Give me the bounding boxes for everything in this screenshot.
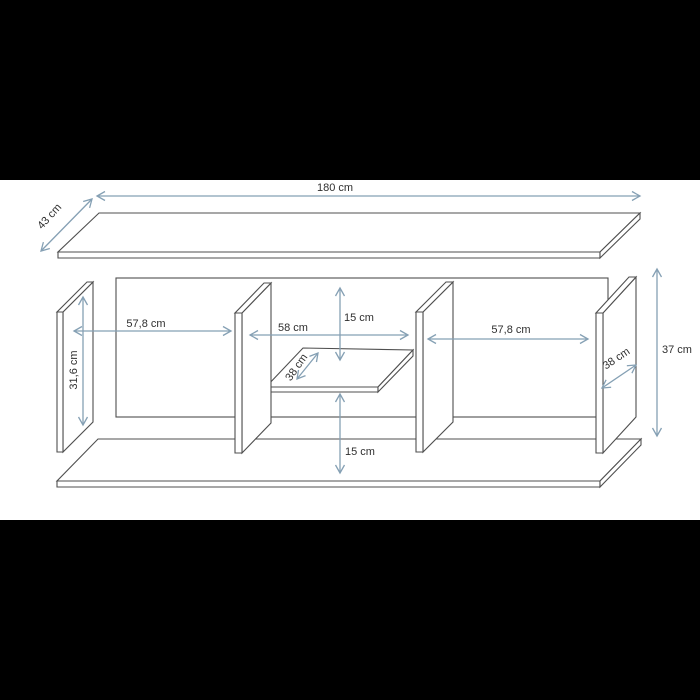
divider-left-front-edge (235, 313, 242, 453)
furniture-dimension-diagram: 180 cm 43 cm 57,8 cm 31,6 cm 58 cm 15 cm… (0, 180, 700, 520)
bottom-panel-front-edge (57, 481, 600, 487)
dim-label-left-width: 57,8 cm (126, 318, 165, 330)
dim-label-top-depth: 43 cm (35, 202, 64, 232)
side-panel-right-front-edge (596, 313, 603, 453)
dim-label-top-width: 180 cm (317, 182, 353, 194)
dim-label-total-height: 37 cm (662, 344, 692, 356)
back-panel-face (116, 278, 608, 417)
screenshot-root: 180 cm 43 cm 57,8 cm 31,6 cm 58 cm 15 cm… (0, 0, 700, 700)
dim-label-left-height: 31,6 cm (68, 350, 80, 389)
divider-right-front-edge (416, 312, 423, 452)
side-panel-left-front-edge (57, 312, 63, 452)
dim-label-center-width: 58 cm (278, 322, 308, 334)
dim-label-right-width: 57,8 cm (491, 324, 530, 336)
top-panel-front-edge (58, 252, 600, 258)
letterbox-top (0, 0, 700, 180)
divider-left (235, 283, 271, 453)
divider-right (416, 282, 453, 452)
letterbox-bottom (0, 520, 700, 700)
shelf-front-edge (266, 387, 378, 392)
back-panel (116, 278, 608, 417)
drawing-canvas: 180 cm 43 cm 57,8 cm 31,6 cm 58 cm 15 cm… (0, 180, 700, 520)
top-panel (58, 213, 640, 258)
dim-label-center-bottom-gap: 15 cm (345, 446, 375, 458)
dim-label-center-top-gap: 15 cm (344, 312, 374, 324)
top-panel-face (58, 213, 640, 252)
